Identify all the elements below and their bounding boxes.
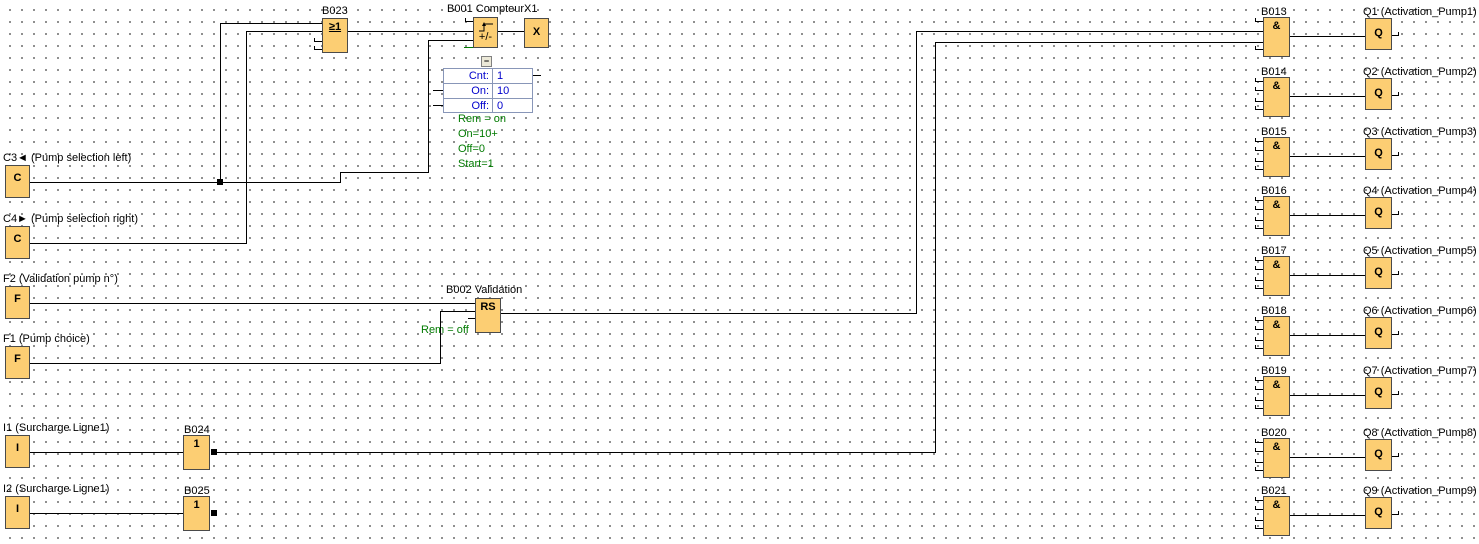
counter-annotation: On=10+	[458, 128, 498, 140]
and-gate-block[interactable]: &	[1263, 196, 1290, 236]
unconnected-pin-stub	[1255, 497, 1263, 501]
open-connector-block[interactable]: X	[524, 18, 549, 48]
input-block-f1[interactable]: F	[5, 346, 30, 379]
unconnected-pin-stub	[1255, 337, 1263, 341]
output-block[interactable]: Q	[1365, 138, 1392, 170]
wire-segment	[217, 452, 935, 453]
wire-segment	[1290, 335, 1365, 336]
collapse-button[interactable]: −	[481, 56, 492, 67]
wire-segment	[246, 31, 322, 32]
input-block-c4[interactable]: C	[5, 226, 30, 259]
output-block[interactable]: Q	[1365, 197, 1392, 229]
input-label-f2: F2 (Validation pump n°)	[3, 273, 118, 285]
unconnected-pin-stub	[1392, 32, 1399, 36]
input-label-i2: I2 (Surcharge Ligne1)	[3, 483, 109, 495]
unconnected-pin-stub	[1255, 448, 1263, 452]
unconnected-pin-stub	[1255, 386, 1263, 390]
wire-segment	[1290, 457, 1365, 458]
unconnected-pin-stub	[1255, 517, 1263, 521]
unconnected-pin-stub	[1255, 506, 1263, 510]
input-label-i1: I1 (Surcharge Ligne1)	[3, 422, 109, 434]
unconnected-pin-stub	[1392, 331, 1399, 335]
wire-segment	[498, 31, 524, 32]
wire-segment	[30, 513, 183, 514]
param-row-cnt: Cnt:1	[444, 69, 532, 84]
not-gate-1-block[interactable]: 1	[183, 435, 210, 470]
or-gate-label: B023	[322, 5, 348, 17]
wire-segment	[220, 23, 322, 24]
output-label: Q1 (Activation_Pump1)	[1363, 6, 1477, 18]
output-block[interactable]: Q	[1365, 78, 1392, 110]
output-label: Q7 (Activation_Pump7)	[1363, 365, 1477, 377]
unconnected-pin-stub	[1392, 511, 1399, 515]
input-block-i1[interactable]: I	[5, 435, 30, 468]
wire-segment	[340, 172, 341, 183]
unconnected-pin-stub	[1255, 225, 1263, 229]
not-gate-2-block[interactable]: 1	[183, 496, 210, 531]
unconnected-pin-stub	[1255, 459, 1263, 463]
wire-segment	[916, 31, 1263, 32]
unconnected-pin-stub	[1392, 391, 1399, 395]
wire-segment	[1290, 275, 1365, 276]
unconnected-pin-stub	[1255, 166, 1263, 170]
unconnected-pin-stub	[1392, 92, 1399, 96]
output-label: Q9 (Activation_Pump9)	[1363, 485, 1477, 497]
wire-segment	[428, 40, 429, 173]
rs-block[interactable]: RS	[475, 298, 501, 333]
unconnected-pin-stub	[1255, 147, 1263, 151]
and-gate-block[interactable]: &	[1263, 256, 1290, 296]
wire-segment	[440, 311, 475, 312]
unconnected-pin-stub	[1255, 525, 1263, 529]
and-gate-block[interactable]: &	[1263, 316, 1290, 356]
wire-segment	[1290, 36, 1365, 37]
unconnected-pin-stub	[1255, 87, 1263, 91]
and-gate-block[interactable]: &	[1263, 137, 1290, 177]
output-label: Q6 (Activation_Pump6)	[1363, 305, 1477, 317]
unconnected-pin-stub	[1255, 277, 1263, 281]
param-pin-stub	[468, 318, 475, 319]
wire-segment	[428, 40, 473, 41]
output-block[interactable]: Q	[1365, 317, 1392, 349]
output-block[interactable]: Q	[1365, 377, 1392, 409]
wire-segment	[246, 31, 247, 244]
counter-annotation: Start=1	[458, 158, 494, 170]
unconnected-pin-stub	[1255, 266, 1263, 270]
connector-label: X1	[524, 3, 537, 15]
wire-segment	[340, 172, 428, 173]
wire-segment	[348, 31, 473, 32]
rs-annotation: Rem = off	[421, 324, 469, 336]
unconnected-pin-stub	[1392, 152, 1399, 156]
unconnected-pin-stub	[1392, 453, 1399, 457]
wire-segment	[30, 363, 440, 364]
output-block[interactable]: Q	[1365, 18, 1392, 50]
unconnected-pin-stub	[1255, 257, 1263, 261]
fbd-canvas: C3◄ (Pump selection left) C C4► (Pump se…	[0, 0, 1479, 544]
output-label: Q8 (Activation_Pump8)	[1363, 427, 1477, 439]
wire-segment	[30, 303, 475, 304]
unconnected-pin-stub	[1255, 217, 1263, 221]
counter-annotation: Off=0	[458, 143, 485, 155]
unconnected-pin-stub	[1255, 345, 1263, 349]
table-pin-stub	[533, 75, 541, 76]
unconnected-pin-stub	[465, 18, 473, 22]
wire-segment	[501, 313, 916, 314]
input-block-f2[interactable]: F	[5, 286, 30, 319]
counter-label: B001 Compteur	[447, 3, 524, 15]
unconnected-pin-stub	[1255, 285, 1263, 289]
output-label: Q3 (Activation_Pump3)	[1363, 126, 1477, 138]
unconnected-pin-stub	[314, 46, 322, 50]
output-block[interactable]: Q	[1365, 439, 1392, 471]
param-row-off: Off:0	[444, 99, 532, 113]
or-gate-block[interactable]: ≥1	[322, 18, 348, 53]
unconnected-pin-stub	[1255, 46, 1263, 50]
edge-trigger-icon	[478, 20, 494, 31]
wire-segment	[916, 31, 917, 314]
wire-segment	[440, 311, 441, 364]
unconnected-pin-stub	[1255, 206, 1263, 210]
unconnected-pin-stub	[1255, 78, 1263, 82]
counter-parameter-table[interactable]: Cnt:1 On:10 Off:0	[443, 68, 533, 113]
unconnected-pin-stub	[1255, 158, 1263, 162]
output-label: Q2 (Activation_Pump2)	[1363, 66, 1477, 78]
unconnected-pin-stub	[1392, 271, 1399, 275]
unconnected-pin-stub	[1255, 439, 1263, 443]
input-label-f1: F1 (Pump choice)	[3, 333, 90, 345]
counter-block[interactable]: +/-	[473, 17, 498, 48]
and-gate-block[interactable]: &	[1263, 17, 1290, 57]
unconnected-pin-stub	[1255, 98, 1263, 102]
wire-segment	[1290, 96, 1365, 97]
input-block-i2[interactable]: I	[5, 496, 30, 529]
rs-block-label: B002 Validation	[446, 284, 522, 296]
unconnected-pin-stub	[1255, 405, 1263, 409]
and-gate-block[interactable]: &	[1263, 77, 1290, 117]
unconnected-pin-stub	[1255, 18, 1263, 22]
wire-segment	[30, 243, 246, 244]
output-label: Q4 (Activation_Pump4)	[1363, 185, 1477, 197]
table-pin-stub	[433, 105, 443, 106]
wire-segment	[30, 182, 340, 183]
wire-segment	[1290, 515, 1365, 516]
unconnected-pin-stub	[1255, 197, 1263, 201]
wire-segment	[1290, 215, 1365, 216]
output-block[interactable]: Q	[1365, 257, 1392, 289]
output-block[interactable]: Q	[1365, 497, 1392, 529]
and-gate-block[interactable]: &	[1263, 376, 1290, 416]
wire-segment	[30, 452, 183, 453]
unconnected-pin-stub	[1392, 211, 1399, 215]
input-block-c3[interactable]: C	[5, 165, 30, 198]
wire-segment	[1290, 395, 1365, 396]
counter-annotation: Rem = on	[458, 113, 506, 125]
wire-segment	[935, 42, 1263, 43]
wire-segment	[935, 42, 936, 453]
unconnected-pin-stub	[1255, 317, 1263, 321]
unconnected-pin-stub	[1255, 326, 1263, 330]
wire-junction-dot	[217, 179, 223, 185]
wire-segment	[220, 23, 221, 183]
and-gate-block[interactable]: &	[1263, 496, 1290, 536]
input-label-c3: C3◄ (Pump selection left)	[3, 152, 131, 164]
unconnected-pin-stub	[1255, 138, 1263, 142]
output-label: Q5 (Activation_Pump5)	[1363, 245, 1477, 257]
wire-segment	[1290, 156, 1365, 157]
inversion-marker	[211, 510, 217, 516]
table-pin-stub	[433, 90, 443, 91]
input-label-c4: C4► (Pump selection right)	[3, 213, 138, 225]
unconnected-pin-stub	[314, 38, 322, 42]
unconnected-pin-stub	[1255, 106, 1263, 110]
unconnected-pin-stub	[1255, 467, 1263, 471]
param-pin-stub	[464, 47, 473, 48]
unconnected-pin-stub	[1255, 397, 1263, 401]
unconnected-pin-stub	[1255, 377, 1263, 381]
param-row-on: On:10	[444, 84, 532, 99]
and-gate-block[interactable]: &	[1263, 438, 1290, 478]
